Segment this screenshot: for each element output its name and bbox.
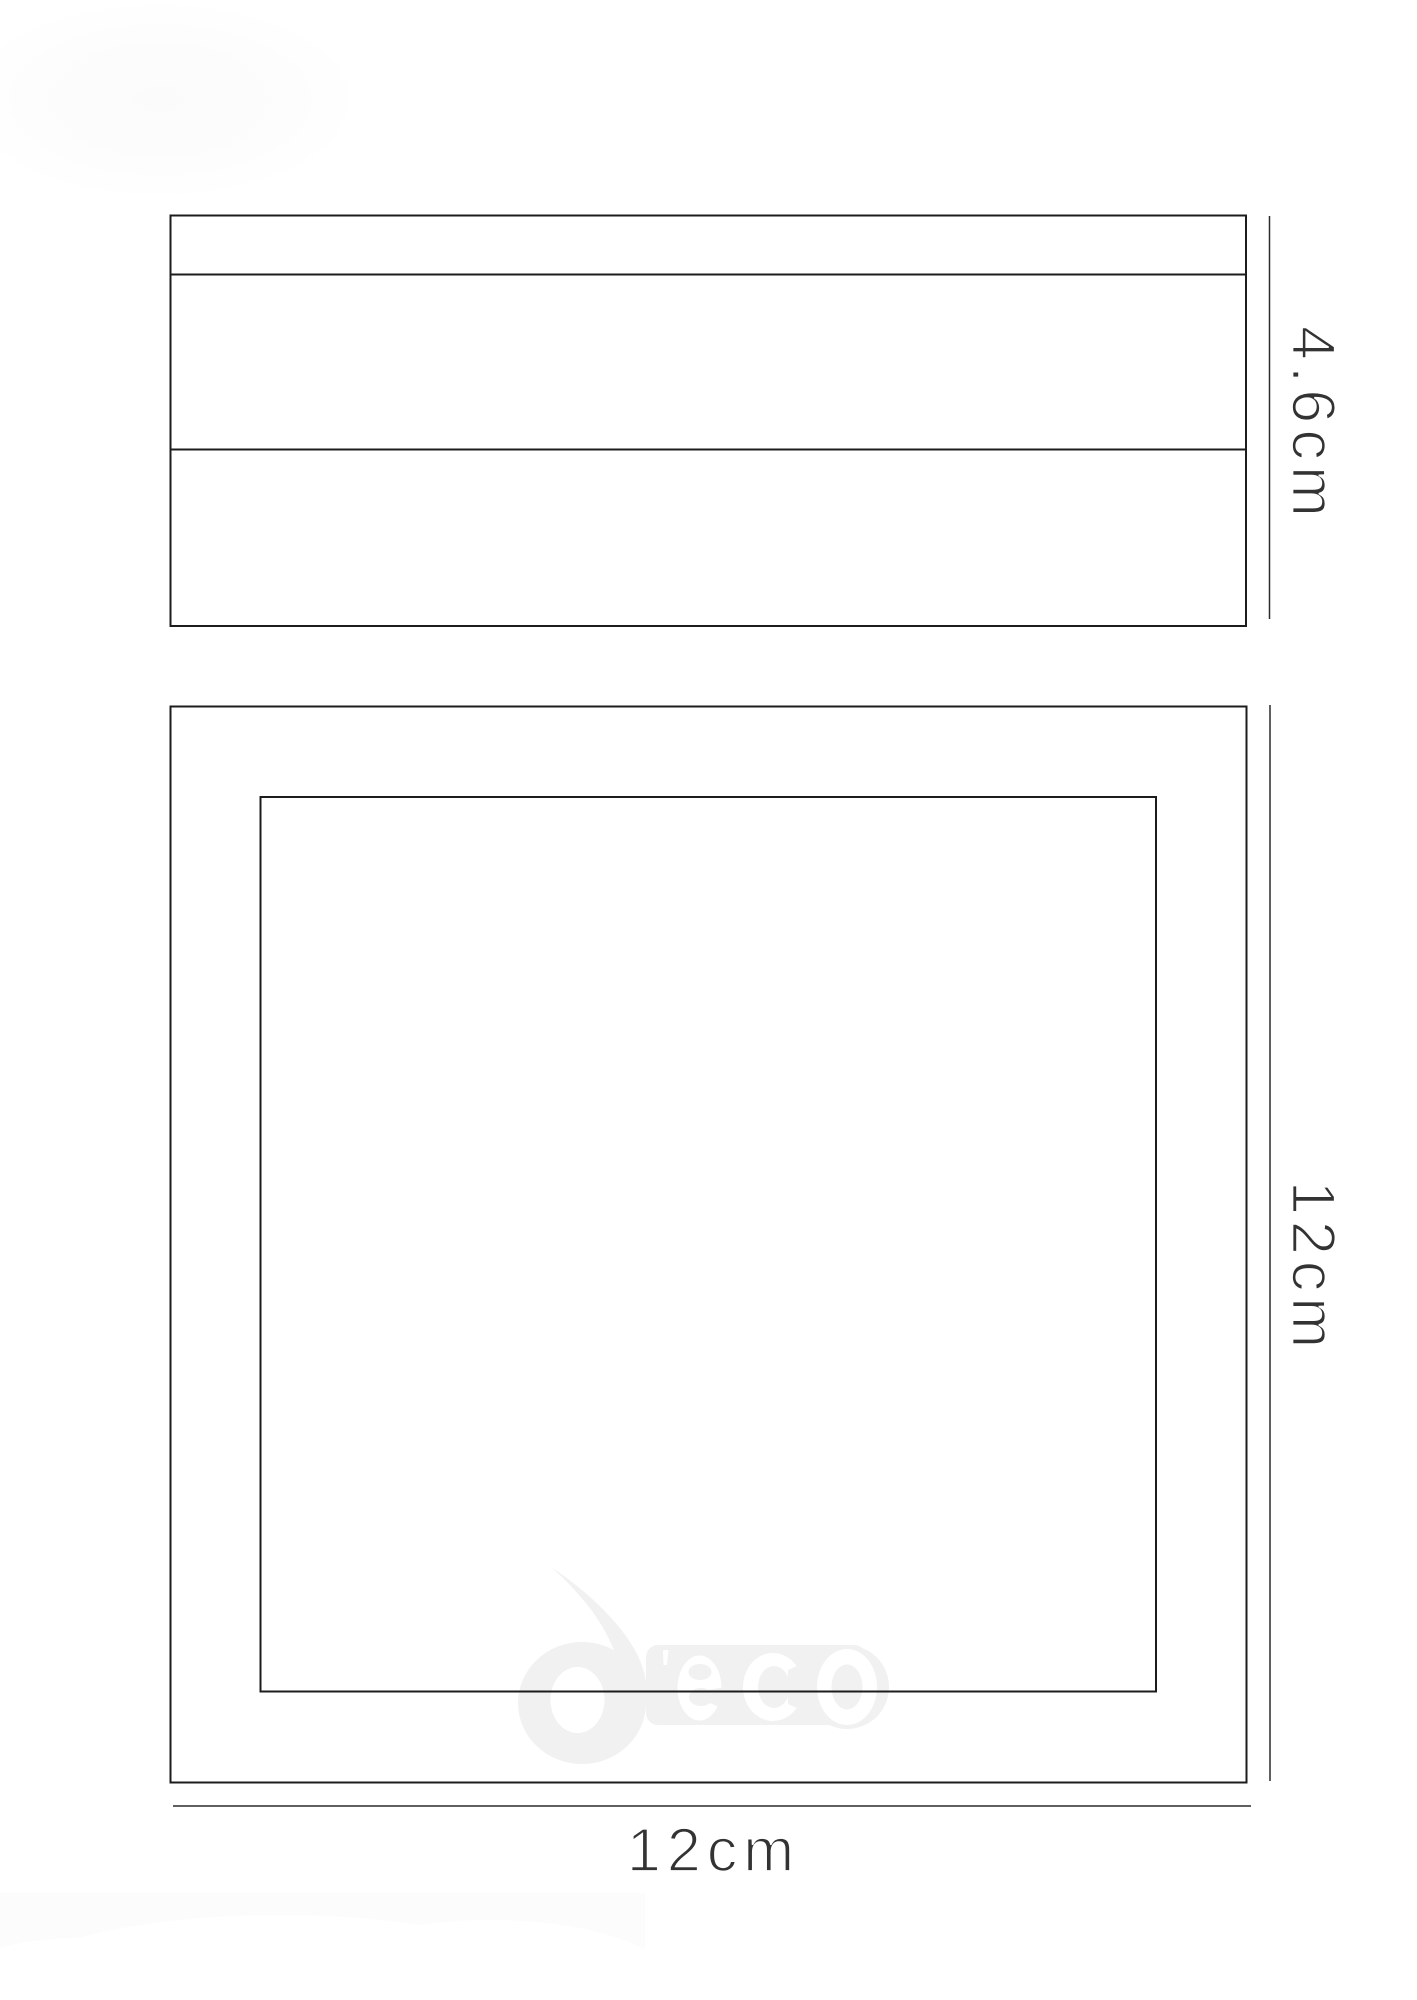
svg-text:12cm: 12cm xyxy=(1280,1181,1348,1354)
svg-text:4.6cm: 4.6cm xyxy=(1280,326,1348,523)
svg-text:12cm: 12cm xyxy=(627,1816,800,1884)
